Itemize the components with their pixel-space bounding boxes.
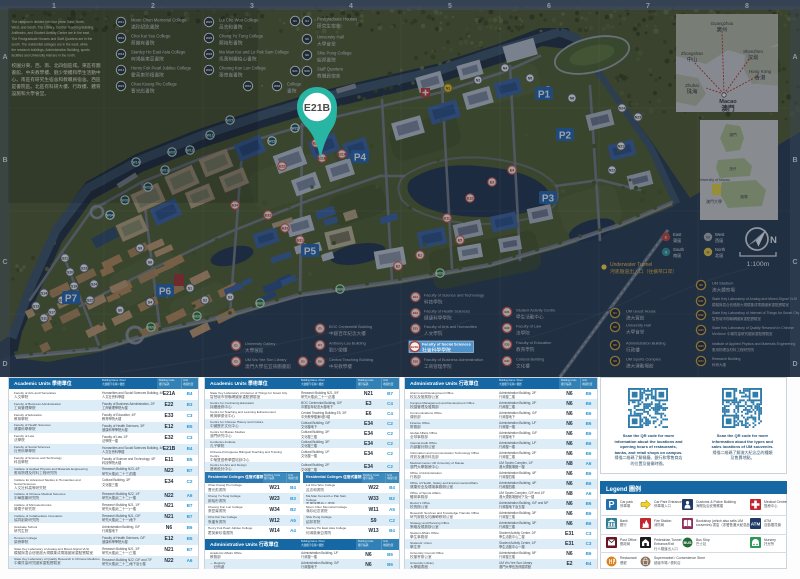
svg-text:E21B: E21B xyxy=(304,102,331,114)
svg-text:ATM: ATM xyxy=(751,522,761,527)
svg-text:E21B: E21B xyxy=(411,345,419,349)
svg-text:P: P xyxy=(608,500,614,510)
svg-text:BUS: BUS xyxy=(683,541,691,545)
svg-text:社會科學學院: 社會科學學院 xyxy=(422,347,451,354)
svg-text:Faculty of Social Sciences: Faculty of Social Sciences xyxy=(422,342,471,347)
